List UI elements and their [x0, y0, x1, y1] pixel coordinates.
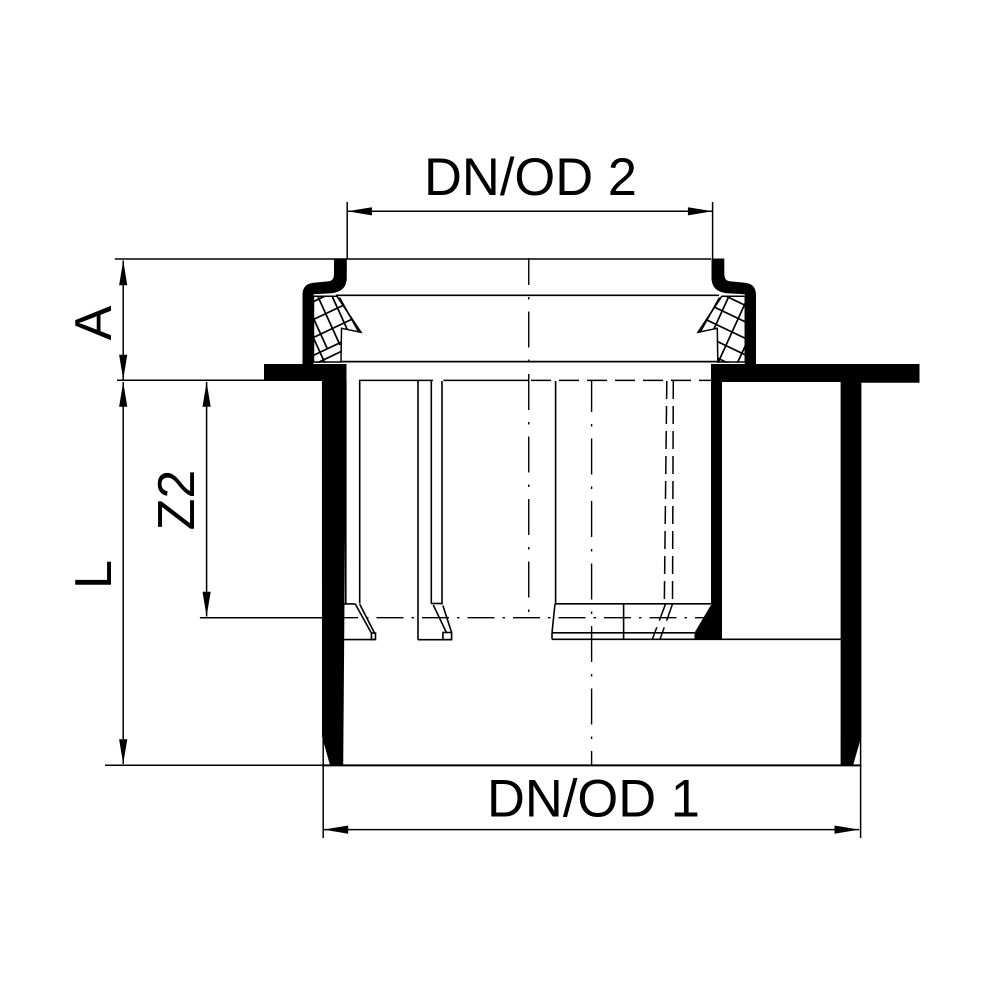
svg-text:A: A	[65, 305, 123, 340]
svg-text:DN/OD 2: DN/OD 2	[424, 148, 637, 207]
svg-text:L: L	[65, 560, 123, 589]
svg-text:DN/OD 1: DN/OD 1	[487, 770, 700, 829]
svg-text:Z2: Z2	[148, 470, 206, 531]
